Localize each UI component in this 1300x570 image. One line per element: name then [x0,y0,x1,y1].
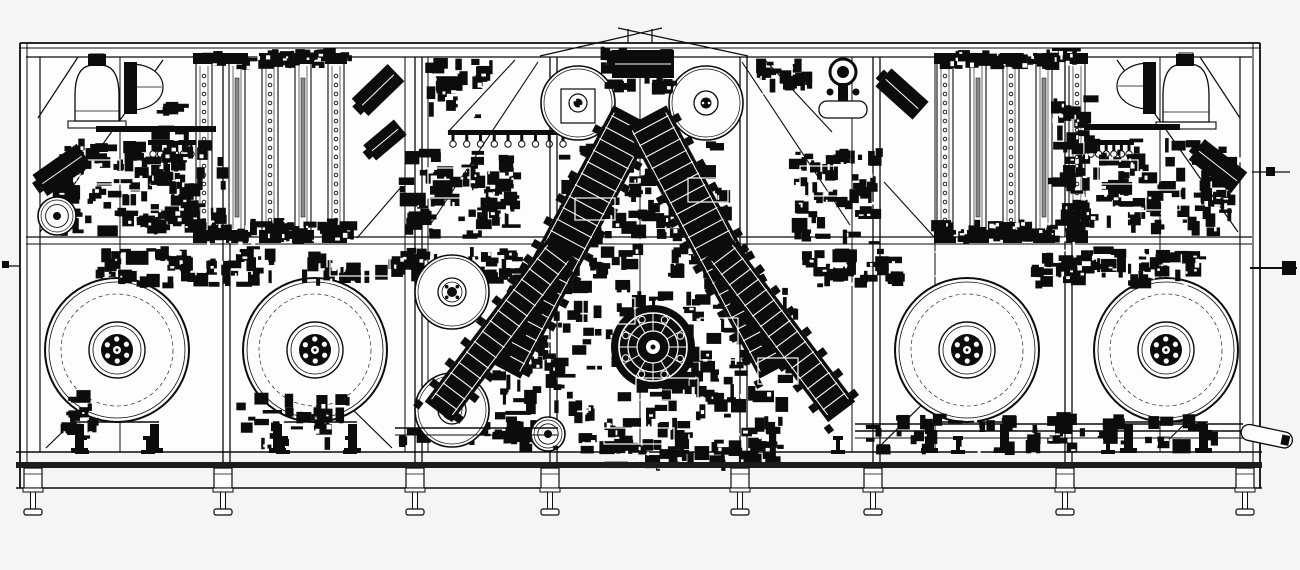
cad-canvas [0,0,1300,570]
base-band [16,462,1262,468]
machine-drawing [0,0,1300,570]
index-turret [611,305,695,389]
machine-legs [23,468,1255,515]
